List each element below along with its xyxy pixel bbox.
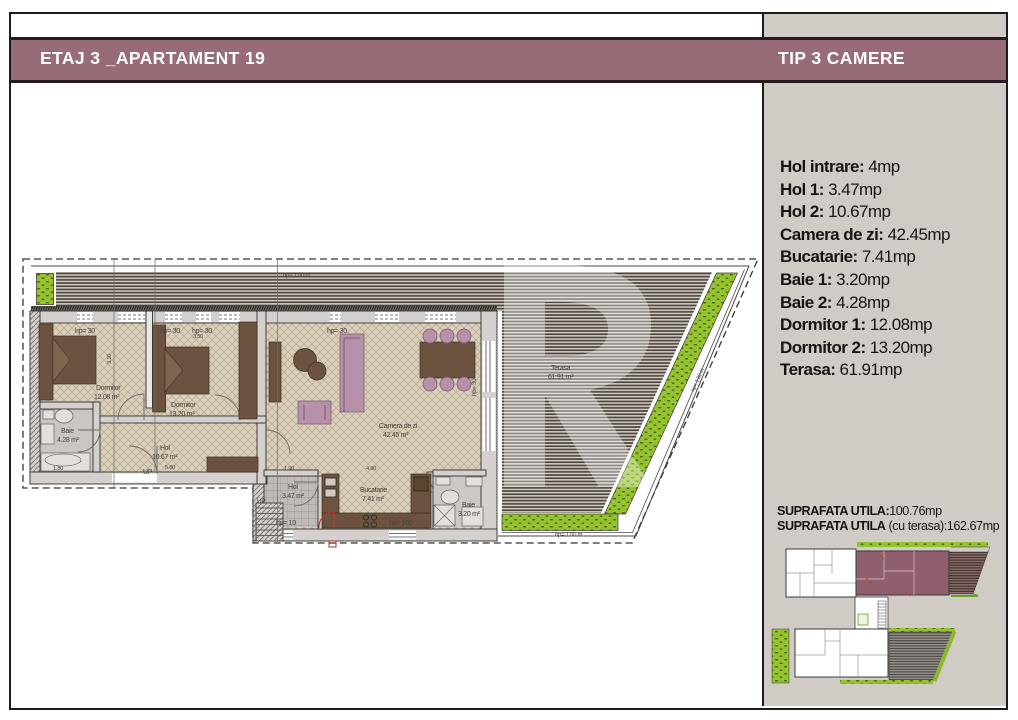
svg-text:Dormitor: Dormitor [96, 385, 121, 392]
svg-text:hp= 30: hp= 30 [327, 328, 347, 335]
svg-text:5.80: 5.80 [165, 465, 175, 471]
svg-text:hp= 30: hp= 30 [471, 378, 478, 396]
svg-text:Baie: Baie [61, 428, 74, 435]
svg-text:Hol: Hol [160, 445, 170, 452]
svg-text:hp= 1.00 m: hp= 1.00 m [690, 367, 706, 393]
svg-text:12.08 m²: 12.08 m² [94, 394, 120, 401]
svg-text:Terasa: Terasa [551, 365, 571, 372]
svg-text:hp= 10: hp= 10 [276, 520, 296, 527]
svg-text:3.50: 3.50 [193, 334, 203, 340]
svg-text:42.45 m²: 42.45 m² [383, 432, 409, 439]
svg-text:1.80: 1.80 [53, 466, 63, 472]
svg-text:Bucatarie: Bucatarie [360, 487, 387, 494]
svg-text:4.90: 4.90 [366, 466, 376, 472]
svg-text:UP: UP [257, 498, 265, 505]
svg-text:hp= 100: hp= 100 [389, 520, 413, 527]
svg-text:hp= 1.00 m: hp= 1.00 m [283, 273, 310, 279]
svg-text:hp= 30: hp= 30 [160, 328, 180, 335]
svg-text:7.41 m²: 7.41 m² [362, 496, 385, 503]
svg-text:61.91 m²: 61.91 m² [548, 374, 574, 381]
svg-text:Camera de zi: Camera de zi [379, 423, 418, 430]
svg-text:13.20 m²: 13.20 m² [169, 411, 195, 418]
svg-text:UP: UP [143, 469, 153, 476]
svg-text:hp= 30: hp= 30 [75, 328, 95, 335]
svg-text:hp= 1.00 m: hp= 1.00 m [555, 533, 582, 539]
svg-text:4.28 m²: 4.28 m² [57, 437, 80, 444]
svg-text:Baie: Baie [462, 502, 475, 509]
svg-text:3.10: 3.10 [107, 354, 113, 364]
svg-text:1.90: 1.90 [284, 466, 294, 472]
svg-text:10.67 m²: 10.67 m² [152, 454, 178, 461]
svg-text:Dormitor: Dormitor [171, 402, 196, 409]
svg-text:3.20 m²: 3.20 m² [458, 511, 481, 518]
svg-text:Hol: Hol [288, 484, 298, 491]
svg-text:3.47 m²: 3.47 m² [282, 493, 305, 500]
